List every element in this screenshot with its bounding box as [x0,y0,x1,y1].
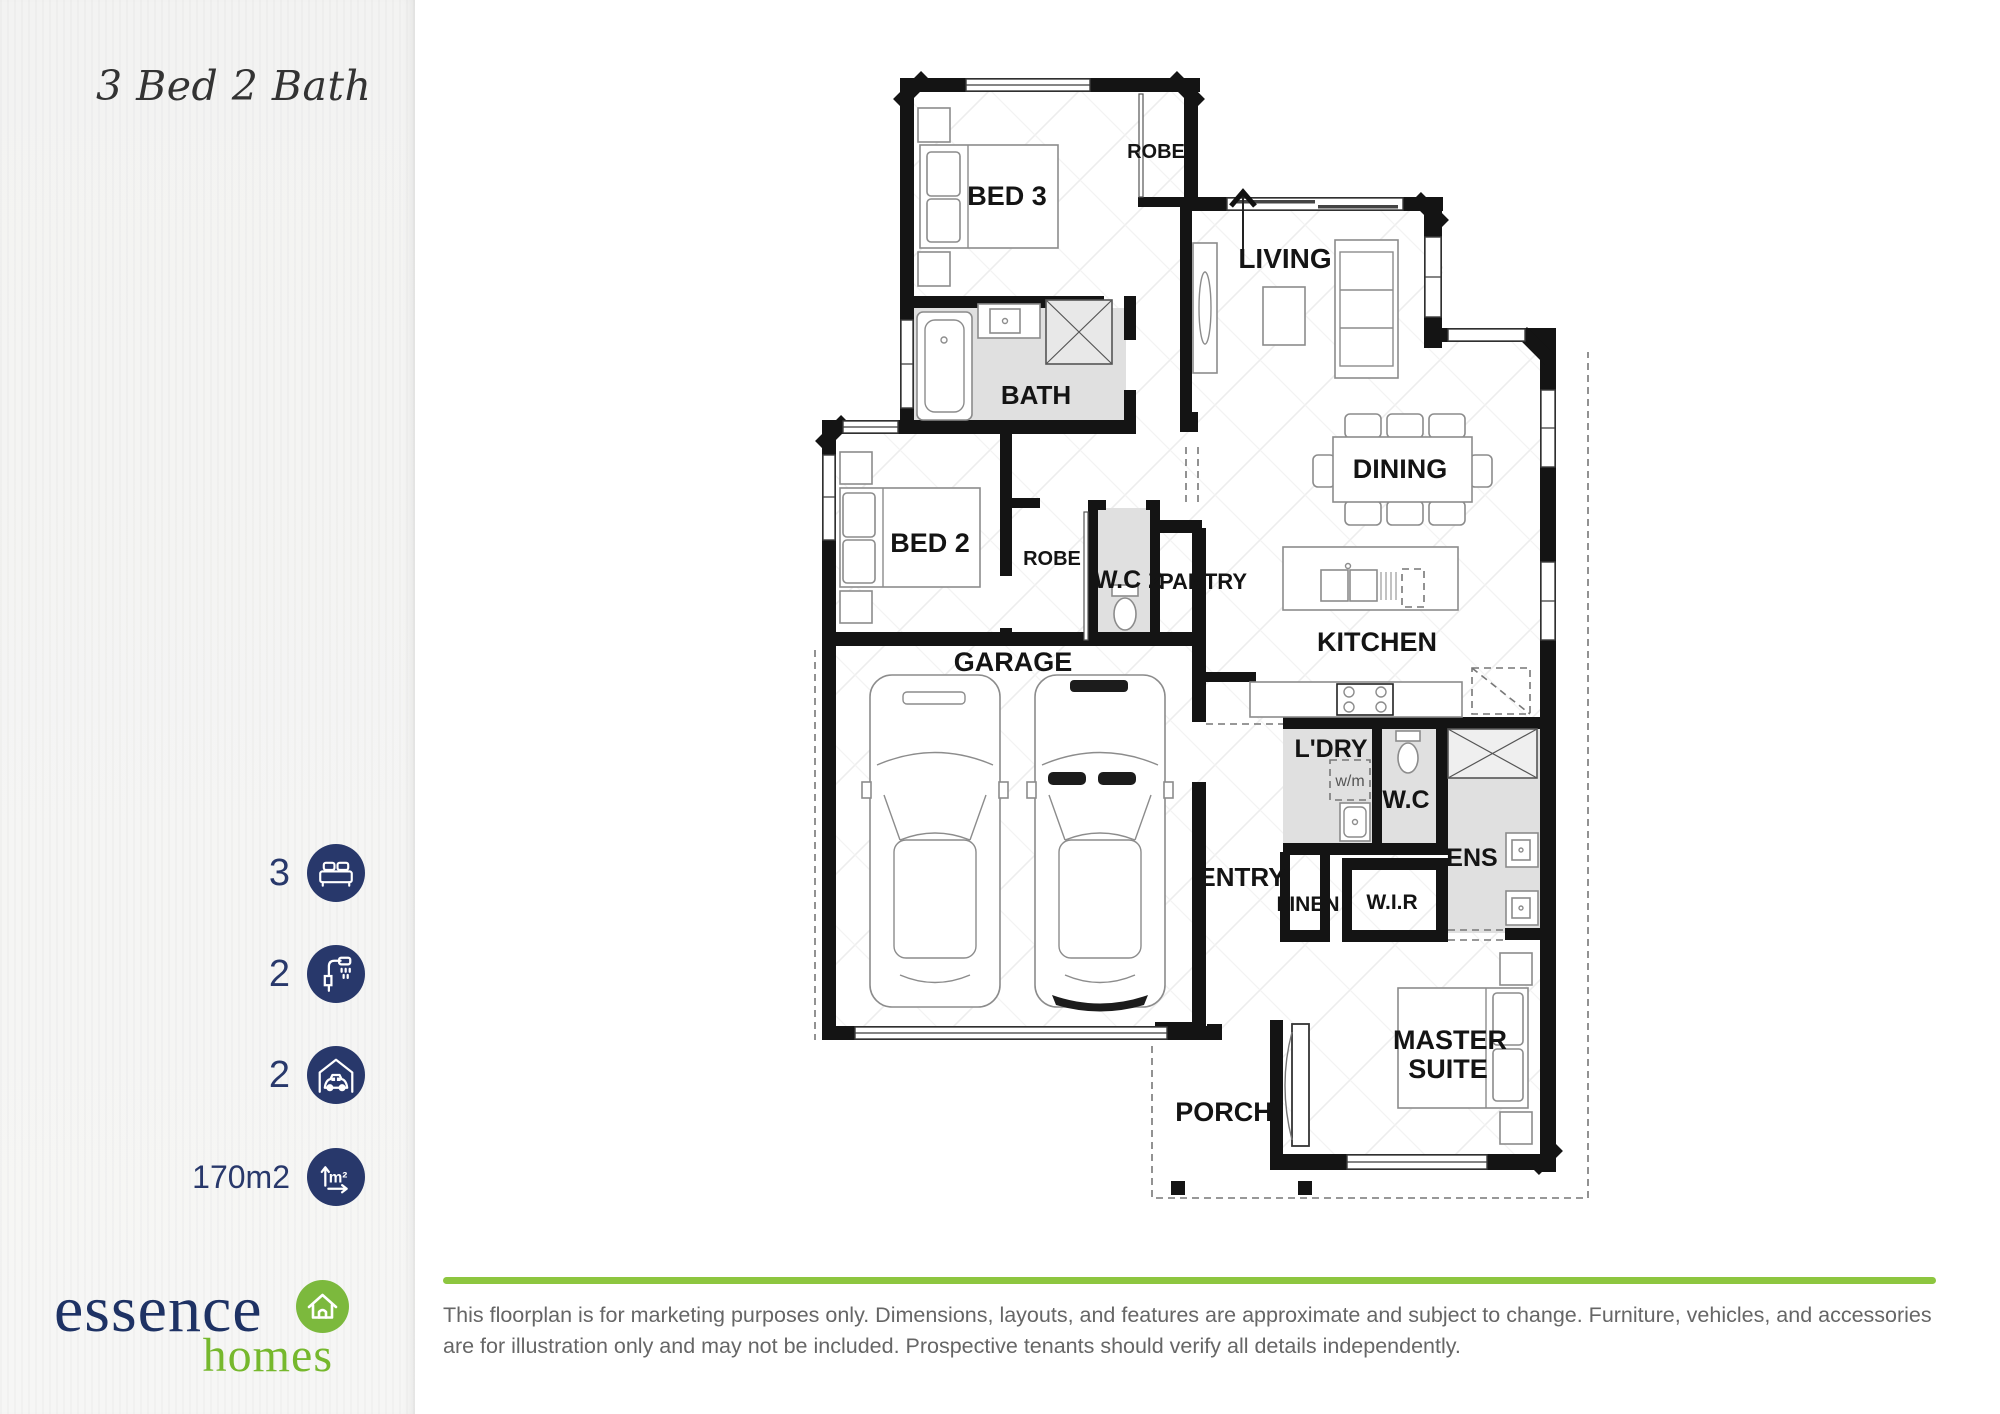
room-label-dining: DINING [1353,454,1448,484]
room-label-pantry: PANTRY [1159,569,1247,594]
room-label-wc: W.C [1382,786,1429,814]
room-label-bed2: BED 2 [890,528,970,558]
room-label-master-2: SUITE [1408,1054,1488,1084]
room-label-robe1: ROBE [1127,141,1185,163]
disclaimer-text: This floorplan is for marketing purposes… [443,1300,1958,1361]
room-label-bath: BATH [1001,380,1071,410]
room-label-linen: LINEN [1277,893,1340,916]
floorplan: BED 3 ROBE LIVING BATH BED 2 ROBE W.C 2 … [0,0,2000,1414]
car-1 [862,675,1008,1007]
room-label-living: LIVING [1238,243,1331,274]
room-label-garage: GARAGE [954,647,1073,677]
room-label-wc2: W.C 2 [1094,566,1162,594]
car-2 [1027,675,1173,1012]
label-wm: w/m [1334,773,1364,790]
divider-bar [443,1277,1936,1284]
room-label-wir: W.I.R [1366,891,1417,914]
room-label-kitchen: KITCHEN [1317,627,1437,657]
room-label-robe2: ROBE [1023,548,1081,570]
flyer-page: 3 Bed 2 Bath 3 2 [0,0,2000,1414]
room-label-ldry: L'DRY [1294,735,1367,763]
room-label-ens: ENS [1446,844,1497,872]
room-label-entry: ENTRY [1198,862,1285,892]
room-label-bed3: BED 3 [967,181,1047,211]
room-label-master-1: MASTER [1393,1025,1507,1055]
room-label-porch: PORCH [1175,1097,1273,1127]
